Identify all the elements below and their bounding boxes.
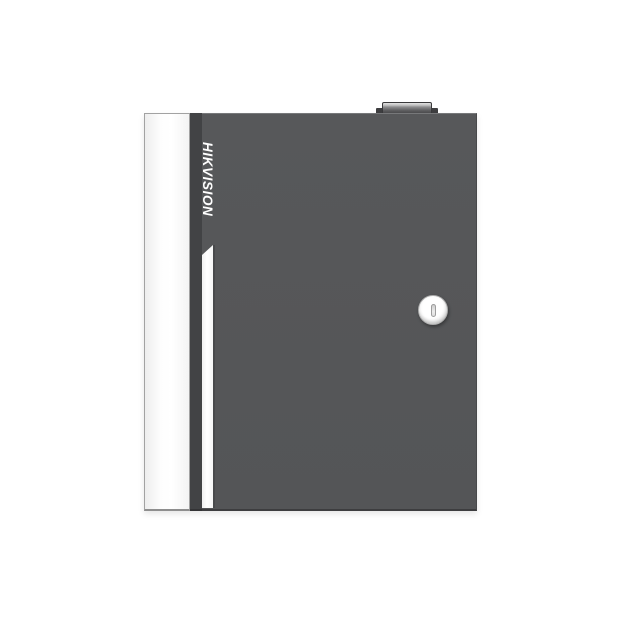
device-enclosure: HIKVISION [144,113,477,511]
cam-lock [418,295,448,325]
accent-stripe [202,245,213,508]
door-edge-panel [144,113,190,511]
stripe-shadow-line [213,245,215,508]
keyhole-slot-icon [431,304,436,317]
product-photo-canvas: HIKVISION [0,0,620,620]
brand-logo: HIKVISION [199,142,215,216]
